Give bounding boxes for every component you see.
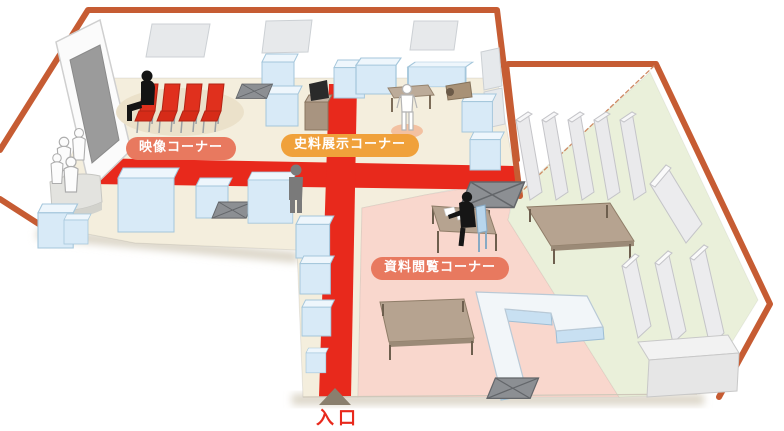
video-corner-label: 映像コーナー [126,137,236,160]
entrance-label: 入口 [316,404,360,430]
exhibit-corner-label: 史料展示コーナー [281,134,419,157]
floor-map-art [0,0,784,431]
reading-corner-label: 資料閲覧コーナー [371,257,509,280]
facility-floor-map: 映像コーナー 史料展示コーナー 資料閲覧コーナー 入口 [0,0,784,431]
round-rug [116,88,244,136]
low-cabinet [638,335,739,397]
